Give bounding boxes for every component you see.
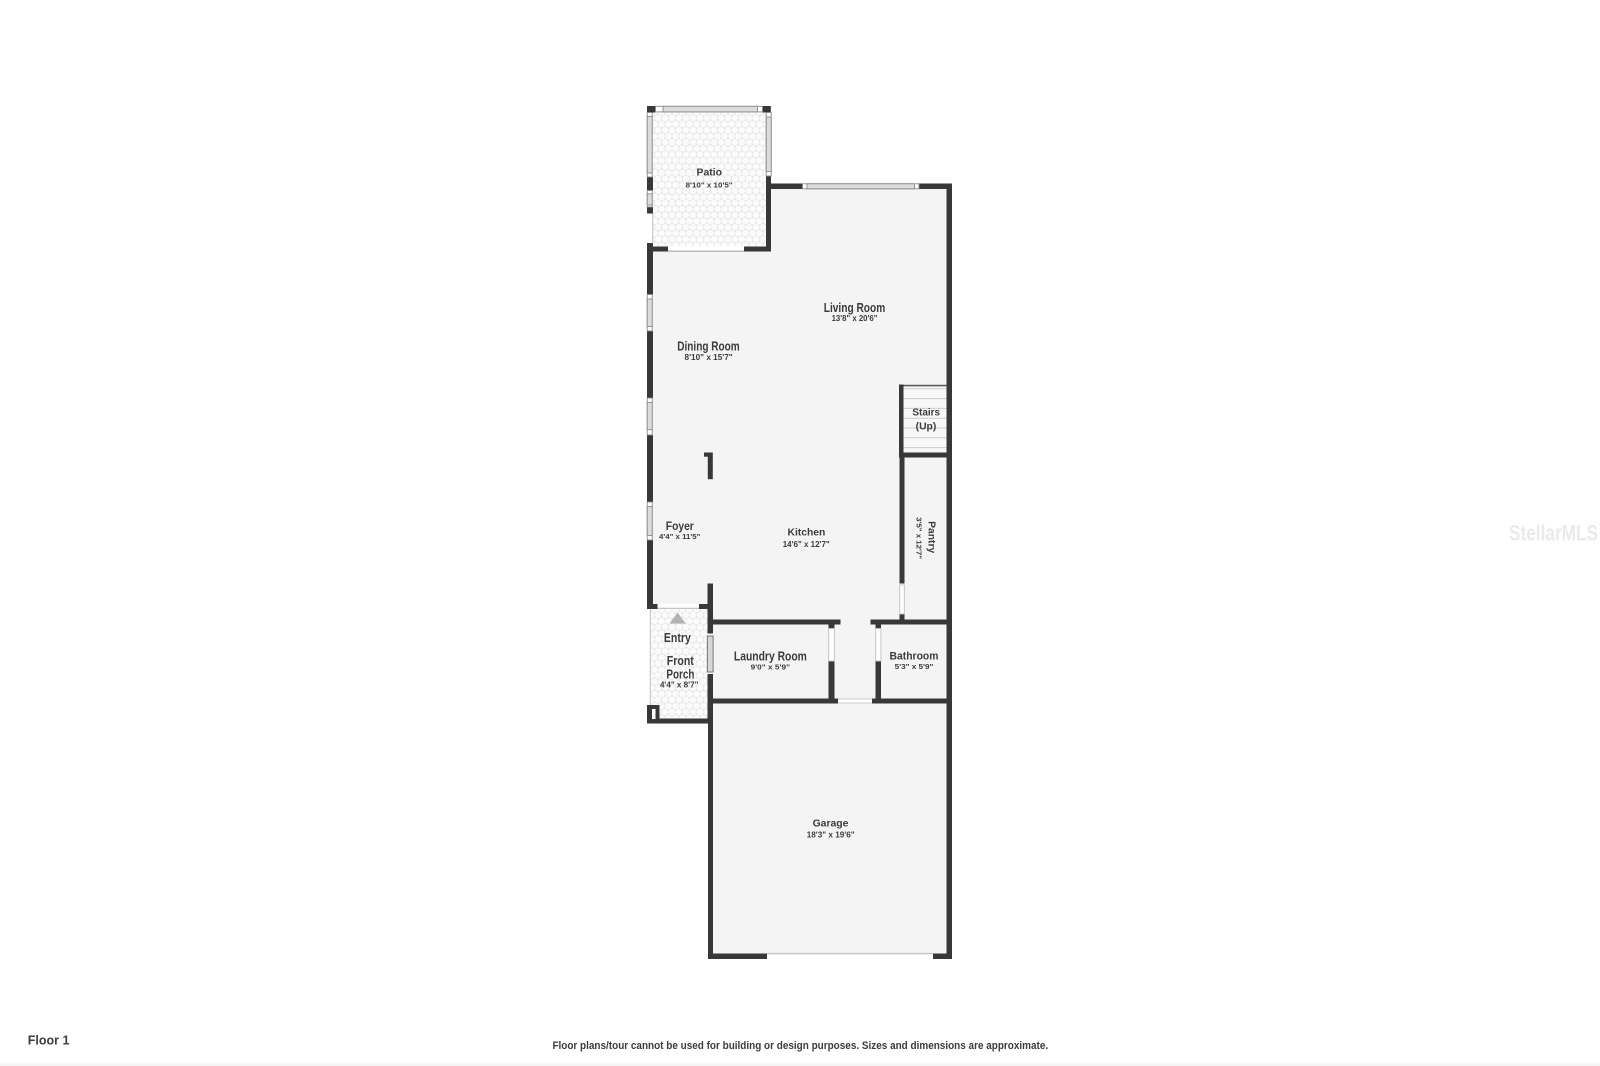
svg-text:3'5" x 12'7": 3'5" x 12'7" [914, 517, 923, 559]
svg-text:Stairs: Stairs [912, 406, 940, 418]
svg-text:13'8" x 20'6": 13'8" x 20'6" [832, 313, 878, 323]
svg-text:Foyer: Foyer [666, 519, 694, 533]
svg-text:Garage: Garage [813, 819, 849, 830]
svg-text:4'4" x 8'7": 4'4" x 8'7" [660, 679, 699, 689]
svg-text:8'10" x 15'7": 8'10" x 15'7" [685, 352, 733, 362]
svg-text:8'10" x 10'5": 8'10" x 10'5" [686, 180, 733, 189]
svg-text:Pantry: Pantry [926, 521, 937, 553]
svg-text:Kitchen: Kitchen [788, 528, 826, 539]
svg-text:Floor plans/tour cannot be use: Floor plans/tour cannot be used for buil… [552, 1040, 1048, 1052]
svg-text:Laundry Room: Laundry Room [734, 649, 807, 664]
svg-text:Front: Front [667, 654, 695, 668]
svg-text:14'6" x 12'7": 14'6" x 12'7" [783, 539, 830, 549]
svg-text:5'3" x 5'9": 5'3" x 5'9" [895, 662, 934, 671]
svg-text:9'0" x 5'9": 9'0" x 5'9" [751, 663, 791, 672]
svg-text:Bathroom: Bathroom [890, 651, 939, 663]
svg-text:(Up): (Up) [916, 421, 937, 433]
svg-text:4'4" x 11'5": 4'4" x 11'5" [659, 532, 701, 541]
svg-text:StellarMLS: StellarMLS [1509, 521, 1598, 546]
svg-text:18'3" x 19'6": 18'3" x 19'6" [807, 829, 855, 839]
svg-text:Entry: Entry [664, 631, 691, 645]
svg-text:Patio: Patio [697, 168, 723, 179]
svg-text:Floor 1: Floor 1 [28, 1032, 70, 1047]
